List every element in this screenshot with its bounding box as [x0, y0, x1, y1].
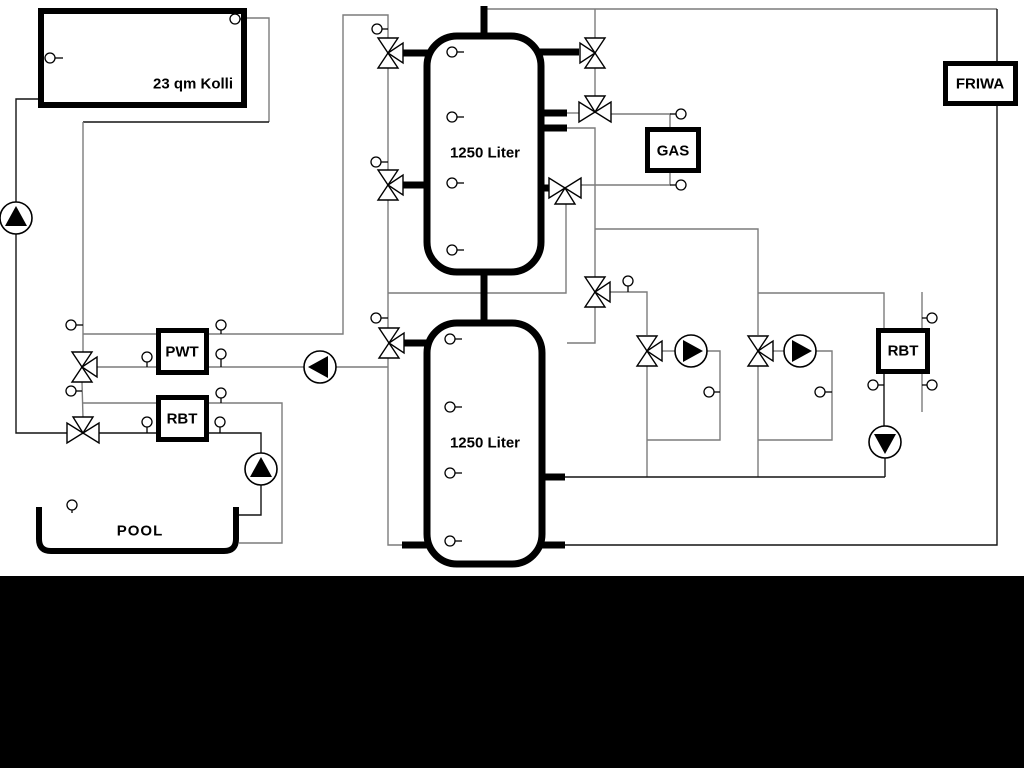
rbt-right-side-sensor-bulb-icon	[215, 417, 225, 427]
pwt-pump	[304, 351, 336, 383]
buffer-tank-1-label: 1250 Liter	[450, 145, 520, 162]
buffer-tank-2-label: 1250 Liter	[450, 435, 520, 452]
tank2-sensor-1-bulb-icon	[445, 334, 455, 344]
gas-bottom-sensor-bulb-icon	[676, 180, 686, 190]
rbt-left-sensor-bulb-icon	[142, 417, 152, 427]
pool-pump	[245, 453, 277, 485]
collector-sensor-left-bulb-icon	[45, 53, 55, 63]
pwt-heat-exchanger: PWT	[159, 331, 207, 373]
solar-collector: 23 qm Kolli	[41, 11, 244, 105]
tank1-sensor-3-bulb-icon	[447, 178, 457, 188]
pwt-heat-exchanger-label: PWT	[165, 344, 198, 361]
rbt-right-sec-bottom-sensor-bulb-icon	[927, 380, 937, 390]
censored-region	[0, 576, 1024, 768]
solar-collector-label: 23 qm Kolli	[153, 76, 233, 93]
mix-valve-sensor-bulb-icon	[623, 276, 633, 286]
rbt-return-pump	[869, 426, 901, 458]
tank2-sensor-2-bulb-icon	[445, 402, 455, 412]
friwa-module: FRIWA	[946, 64, 1016, 104]
rbt-right-return-sensor-bulb-icon	[868, 380, 878, 390]
rbt-right-label: RBT	[888, 343, 919, 360]
rbt-top-right-sensor-bulb-icon	[216, 388, 226, 398]
valve1-sensor-bulb-icon	[372, 24, 382, 34]
buffer-tank-2: 1250 Liter	[427, 323, 542, 564]
tank2-sensor-4-bulb-icon	[445, 536, 455, 546]
pwt-right-sensor-bulb-icon	[216, 349, 226, 359]
gas-top-sensor-bulb-icon	[676, 109, 686, 119]
rbt-left: RBT	[159, 398, 207, 440]
pool-sensor-bulb-icon	[67, 500, 77, 510]
collector-sensor-top-bulb-icon	[230, 14, 240, 24]
valve3-sensor-bulb-icon	[371, 313, 381, 323]
friwa-module-label: FRIWA	[956, 76, 1004, 93]
heating-circuit-1-pump	[675, 335, 707, 367]
rbt-left-in-sensor-bulb-icon	[66, 386, 76, 396]
valve2-sensor-bulb-icon	[371, 157, 381, 167]
pipe-pwt-rbt-link	[82, 382, 83, 418]
rbt-right: RBT	[879, 331, 928, 372]
pwt-left-sensor-bulb-icon	[142, 352, 152, 362]
pool-label: POOL	[117, 523, 164, 540]
heating-schematic-diagram: 1250 Liter1250 Liter23 qm KolliGASFRIWAP…	[0, 0, 1024, 768]
tank2-sensor-3-bulb-icon	[445, 468, 455, 478]
pwt-top-right-sensor-bulb-icon	[216, 320, 226, 330]
solar-pool-pump	[0, 202, 32, 234]
schematic-canvas: 1250 Liter1250 Liter23 qm KolliGASFRIWAP…	[0, 0, 1024, 768]
rbt-left-label: RBT	[167, 411, 198, 428]
gas-boiler: GAS	[648, 130, 699, 171]
rbt-right-sec-top-sensor-bulb-icon	[927, 313, 937, 323]
heating-circuit-2-pump	[784, 335, 816, 367]
tank1-sensor-4-bulb-icon	[447, 245, 457, 255]
tank1-sensor-1-bulb-icon	[447, 47, 457, 57]
circuit2-sensor-bulb-icon	[815, 387, 825, 397]
gas-boiler-label: GAS	[657, 143, 690, 160]
pwt-in-sensor-bulb-icon	[66, 320, 76, 330]
tank1-sensor-2-bulb-icon	[447, 112, 457, 122]
circuit1-sensor-bulb-icon	[704, 387, 714, 397]
buffer-tank-1: 1250 Liter	[427, 36, 541, 272]
